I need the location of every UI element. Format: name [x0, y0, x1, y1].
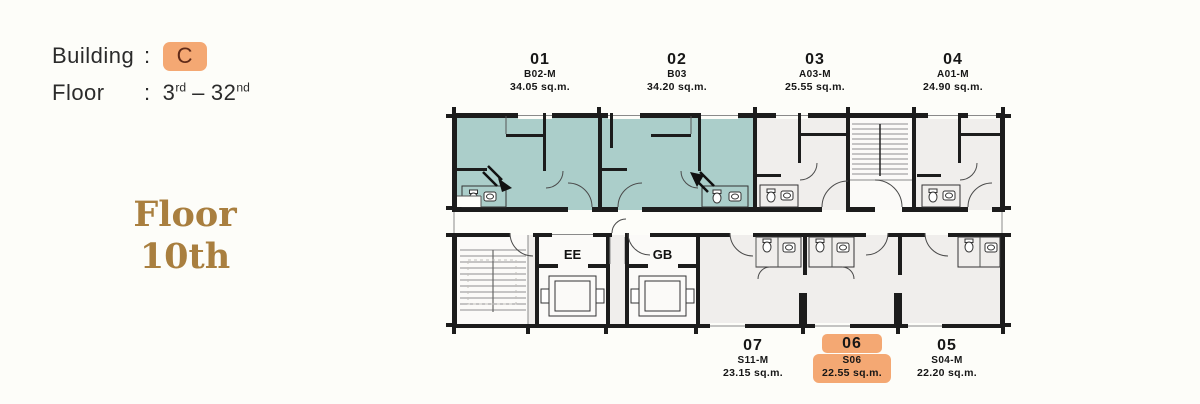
- unit-code: S04-M: [882, 355, 1012, 367]
- floor-range-separator: –: [192, 80, 205, 105]
- floor-plan-page: Building : C Floor : 3rd–32nd Floor 10th…: [0, 0, 1200, 404]
- floor-callout-line2: 10th: [75, 236, 295, 278]
- unit-label-03: 03 A03-M 25.55 sq.m.: [750, 50, 880, 94]
- unit-code: A03-M: [750, 69, 880, 81]
- floor-plan-drawing: EE GB: [440, 100, 1020, 340]
- facade-notch: [457, 196, 481, 207]
- unit-area: 34.20 sq.m.: [612, 81, 742, 94]
- elevator-gb-label: GB: [653, 247, 673, 262]
- building-label: Building: [52, 43, 144, 69]
- elevator-ee-label: EE: [564, 247, 582, 262]
- unit-label-01: 01 B02-M 34.05 sq.m.: [475, 50, 605, 94]
- unit-code: B03: [612, 69, 742, 81]
- floor-range-end-suffix: nd: [236, 81, 249, 95]
- unit-area: 34.05 sq.m.: [475, 81, 605, 94]
- floor-range-end: 32: [211, 80, 236, 105]
- floor-range: 3rd–32nd: [163, 80, 250, 106]
- unit-area: 22.55 sq.m.: [822, 367, 882, 380]
- unit-code: B02-M: [475, 69, 605, 81]
- floor-range-start: 3: [163, 80, 176, 105]
- building-value-highlight: C: [163, 42, 207, 71]
- floor-callout-line1: Floor: [75, 194, 295, 236]
- unit-number: 02: [612, 50, 742, 69]
- unit-number: 04: [888, 50, 1018, 69]
- unit-label-02: 02 B03 34.20 sq.m.: [612, 50, 742, 94]
- floor-colon: :: [144, 80, 151, 106]
- floor-range-start-suffix: rd: [175, 81, 186, 95]
- unit-label-05: 05 S04-M 22.20 sq.m.: [882, 336, 1012, 380]
- floor-row: Floor : 3rd–32nd: [52, 80, 250, 106]
- floor-callout: Floor 10th: [75, 194, 295, 278]
- building-row: Building : C: [52, 42, 250, 71]
- header: Building : C Floor : 3rd–32nd: [52, 42, 250, 115]
- unit-label-04: 04 A01-M 24.90 sq.m.: [888, 50, 1018, 94]
- unit-area: 22.20 sq.m.: [882, 367, 1012, 380]
- unit-code: S06: [822, 355, 882, 367]
- unit-area: 24.90 sq.m.: [888, 81, 1018, 94]
- building-colon: :: [144, 43, 151, 69]
- floor-label: Floor: [52, 80, 144, 106]
- unit-number: 03: [750, 50, 880, 69]
- unit-code: A01-M: [888, 69, 1018, 81]
- unit-number: 01: [475, 50, 605, 69]
- unit-area: 25.55 sq.m.: [750, 81, 880, 94]
